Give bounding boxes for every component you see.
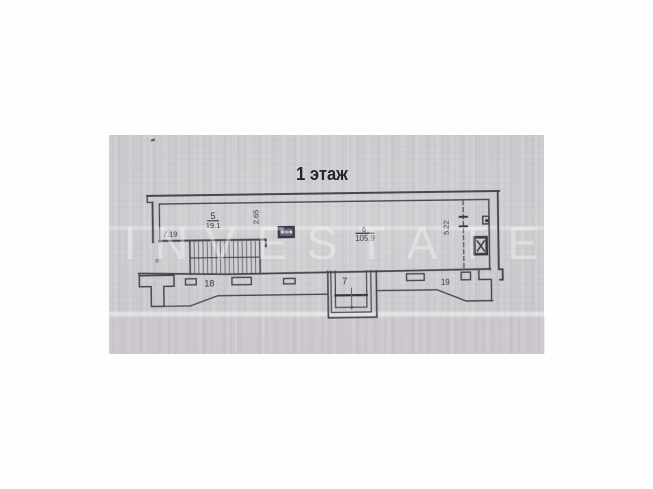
- svg-text:7: 7: [342, 276, 347, 287]
- svg-text:19: 19: [441, 278, 451, 287]
- svg-text:18: 18: [204, 278, 214, 288]
